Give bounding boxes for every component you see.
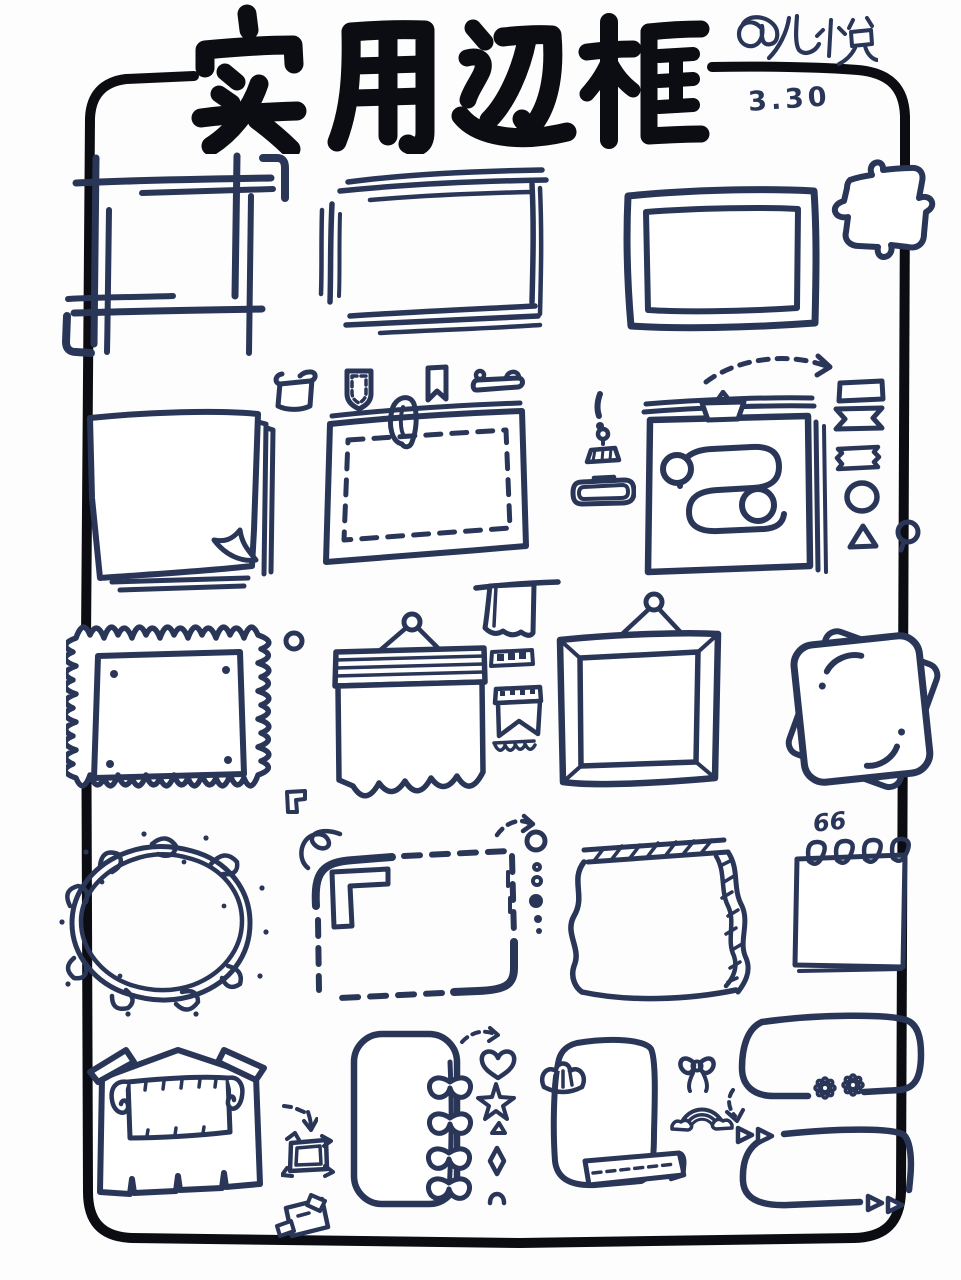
mini-photo-frame-icon	[281, 1130, 336, 1180]
paperclip-dashed-frame	[316, 388, 536, 580]
hanging-banner-frame	[328, 588, 492, 808]
daisy-icon	[815, 1078, 835, 1098]
bunting-icon	[490, 738, 538, 758]
triangle-arrow-icon	[758, 1129, 772, 1143]
shell-ribbon-frame	[533, 1033, 687, 1211]
date-text: 3.30	[747, 81, 832, 118]
film-strip-icon	[488, 645, 538, 669]
quote-marks-text: 66	[812, 806, 848, 837]
scribble-circle-frame	[56, 826, 274, 1024]
triangle-arrow-icon	[868, 1196, 882, 1210]
ribbon-banner-icon	[830, 402, 888, 434]
taped-note-icon	[273, 1186, 335, 1244]
puzzle-piece	[826, 156, 938, 264]
sketch-lines-frame	[308, 162, 550, 340]
author-signature	[733, 6, 878, 68]
page-title	[183, 2, 728, 154]
dashed-arrow-down-icon	[280, 1098, 318, 1132]
dots-column	[500, 828, 558, 946]
icon-column	[456, 1026, 520, 1214]
binder-clip-icon	[583, 426, 623, 468]
triangle-icon	[846, 521, 880, 551]
triangle-arrow-icon	[738, 1128, 752, 1142]
flower-gap-frame	[728, 1006, 930, 1108]
picture-frame	[548, 586, 730, 794]
crop-marks-frame	[58, 146, 303, 364]
speech-bubble-icon	[893, 519, 925, 553]
arc-icon	[490, 1194, 504, 1203]
dashed-arc-arrow	[698, 350, 843, 388]
house-scroll-frame	[76, 1038, 284, 1210]
collage-frame	[636, 390, 832, 580]
doodle-page: 实用边框 @九悦 3.30	[0, 0, 961, 1280]
bow-icon	[676, 1046, 718, 1093]
triangle-arrow-icon	[888, 1198, 902, 1212]
daisy-icon	[843, 1075, 863, 1095]
spiral-notepad-frame	[783, 813, 923, 975]
circle-icon	[841, 477, 883, 517]
dot-circle-icon	[282, 628, 308, 656]
arrow-gap-frame	[726, 1118, 930, 1218]
washi-tape-icon	[828, 442, 888, 472]
stacked-paper-frame	[78, 398, 280, 596]
star-icon	[478, 1084, 514, 1119]
heart-icon	[482, 1052, 514, 1078]
small-triangle-icon	[492, 1123, 505, 1133]
torn-tape-frame	[568, 830, 756, 1008]
dashed-corner-frame	[306, 838, 524, 1006]
diamond-icon	[490, 1148, 504, 1174]
stamp-frame	[66, 606, 274, 806]
corner-bracket-icon	[283, 786, 311, 820]
double-border-frame	[616, 180, 828, 338]
rotated-cards-frame	[783, 610, 941, 814]
nameplate-icon	[570, 472, 636, 508]
